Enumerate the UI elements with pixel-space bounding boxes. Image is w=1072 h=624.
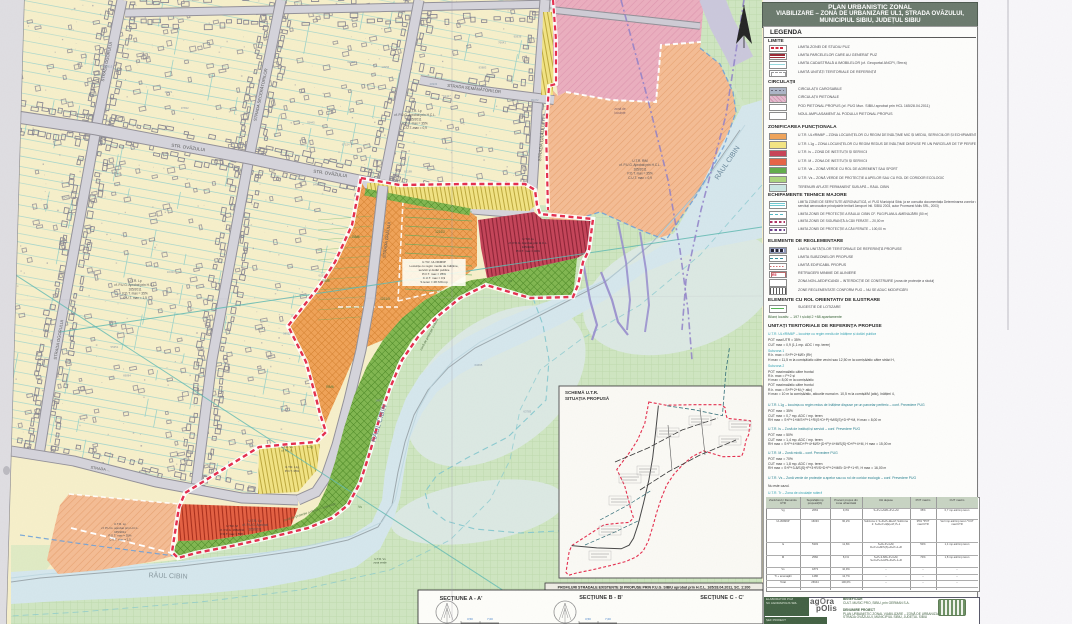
svg-text:3,50: 3,50 (467, 617, 473, 621)
svg-text:7,00: 7,00 (487, 617, 493, 621)
svg-text:14828: 14828 (375, 399, 383, 403)
svg-text:Vs: Vs (508, 279, 512, 283)
svg-text:Vs: Vs (358, 505, 362, 509)
svg-text:82189: 82189 (404, 170, 412, 174)
svg-text:97832: 97832 (181, 106, 189, 110)
svg-text:95938: 95938 (514, 34, 522, 38)
svg-text:6161: 6161 (319, 273, 326, 277)
svg-text:U.T.R. Vs: U.T.R. Vs (374, 557, 386, 561)
svg-text:P.O.T. 35%: P.O.T. 35% (285, 469, 300, 473)
svg-text:90767: 90767 (87, 271, 95, 275)
svg-text:165/2011: 165/2011 (248, 527, 261, 531)
svg-text:PROFILURI STRADALE EXISTENTE Ș: PROFILURI STRADALE EXISTENTE ȘI PROPUSE … (558, 586, 751, 590)
svg-text:1231/2: 1231/2 (435, 230, 445, 234)
svg-text:RiM6: RiM6 (322, 279, 330, 283)
svg-text:63783: 63783 (523, 410, 531, 414)
svg-text:C.U.T. max = 1,5: C.U.T. max = 1,5 (109, 538, 131, 542)
svg-text:C.U.T. max = 0,9: C.U.T. max = 0,9 (628, 176, 652, 180)
svg-text:10956: 10956 (381, 65, 389, 69)
svg-text:38925: 38925 (283, 331, 291, 335)
svg-text:78445: 78445 (307, 121, 315, 125)
svg-text:84589: 84589 (313, 183, 321, 187)
svg-text:83883: 83883 (479, 66, 487, 70)
svg-text:U.T.R. Vs: U.T.R. Vs (281, 445, 293, 449)
svg-text:RiM6: RiM6 (352, 235, 360, 239)
svg-text:C.U.T. max = 0,9: C.U.T. max = 0,9 (403, 126, 427, 130)
svg-text:7,00: 7,00 (605, 617, 611, 621)
svg-text:25971: 25971 (165, 90, 173, 94)
svg-text:64695: 64695 (474, 363, 482, 367)
svg-text:67154: 67154 (342, 143, 350, 147)
svg-text:99472: 99472 (531, 98, 539, 102)
svg-text:SECȚIUNE B - B': SECȚIUNE B - B' (579, 595, 623, 601)
svg-text:63427: 63427 (443, 94, 451, 98)
svg-text:SCHEMĂ U.T.R.: SCHEMĂ U.T.R. (565, 389, 598, 395)
svg-text:P.O.T. max = 40%: P.O.T. max = 40% (516, 249, 540, 253)
svg-text:SITUAȚIA PROPUSĂ: SITUAȚIA PROPUSĂ (565, 395, 610, 401)
svg-text:locuințe: locuințe (615, 111, 626, 115)
svg-text:55351: 55351 (111, 345, 119, 349)
svg-text:40933: 40933 (429, 82, 437, 86)
svg-text:RiM6: RiM6 (326, 385, 334, 389)
svg-text:L1g: L1g (307, 445, 313, 449)
svg-text:cf. R.L.U.: cf. R.L.U. (281, 449, 292, 453)
svg-text:zona verde: zona verde (373, 561, 387, 565)
svg-text:76641: 76641 (498, 41, 506, 45)
svg-text:3,50: 3,50 (585, 617, 591, 621)
svg-text:S teren = 28.729 mp: S teren = 28.729 mp (420, 280, 448, 284)
svg-text:59815: 59815 (104, 65, 112, 69)
svg-text:71043: 71043 (61, 196, 69, 200)
svg-text:SECȚIUNE C - C': SECȚIUNE C - C' (700, 595, 744, 601)
svg-text:16433: 16433 (167, 270, 175, 274)
svg-text:62163: 62163 (347, 60, 355, 64)
svg-text:90229: 90229 (296, 174, 304, 178)
svg-text:69884: 69884 (123, 374, 131, 378)
svg-text:P.O.T. max = 55%: P.O.T. max = 55% (220, 532, 243, 536)
